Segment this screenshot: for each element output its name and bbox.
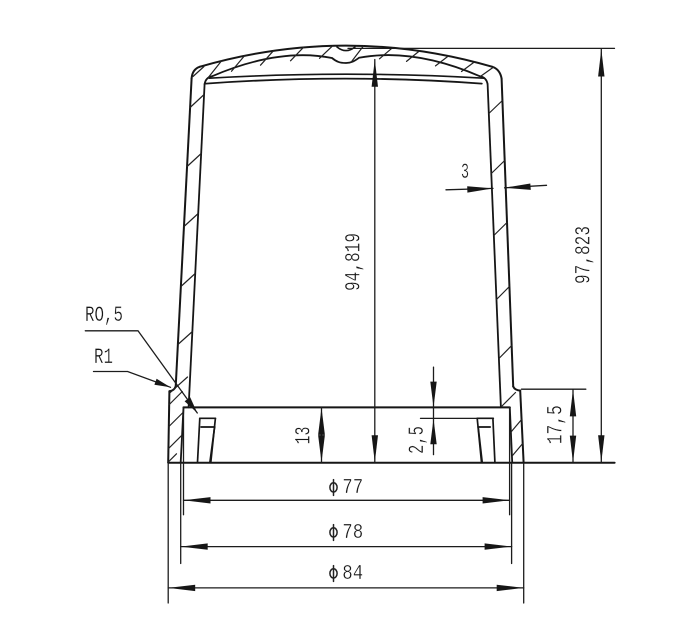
svg-text:R1: R1 bbox=[94, 345, 113, 370]
svg-text:2,5: 2,5 bbox=[405, 426, 430, 454]
svg-text:RO,5: RO,5 bbox=[85, 303, 123, 328]
svg-text:17,5: 17,5 bbox=[543, 405, 568, 444]
svg-text:13: 13 bbox=[292, 427, 317, 445]
svg-text:77: 77 bbox=[342, 477, 363, 500]
svg-text:84: 84 bbox=[342, 563, 363, 586]
svg-text:94,819: 94,819 bbox=[341, 233, 366, 291]
svg-text:97,823: 97,823 bbox=[572, 226, 597, 284]
svg-text:78: 78 bbox=[342, 522, 363, 545]
svg-text:3: 3 bbox=[461, 160, 469, 185]
